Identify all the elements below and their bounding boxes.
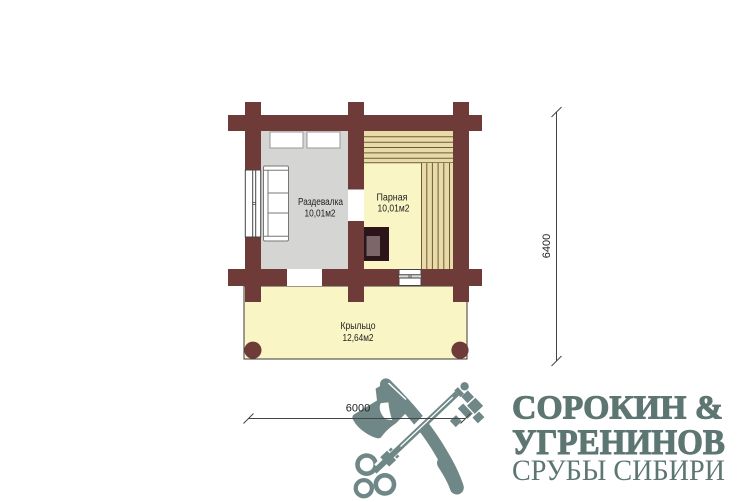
svg-text:6400: 6400	[541, 234, 553, 258]
svg-text:10,01м2: 10,01м2	[378, 203, 410, 214]
svg-text:6000: 6000	[346, 403, 370, 415]
svg-text:Раздевалка: Раздевалка	[298, 197, 343, 208]
svg-text:СРУБЫ СИБИРИ: СРУБЫ СИБИРИ	[512, 455, 725, 487]
svg-text:12,64м2: 12,64м2	[343, 333, 374, 344]
svg-text:10,01м2: 10,01м2	[305, 208, 336, 219]
svg-text:Крыльцо: Крыльцо	[341, 321, 376, 332]
svg-text:Парная: Парная	[377, 193, 408, 204]
